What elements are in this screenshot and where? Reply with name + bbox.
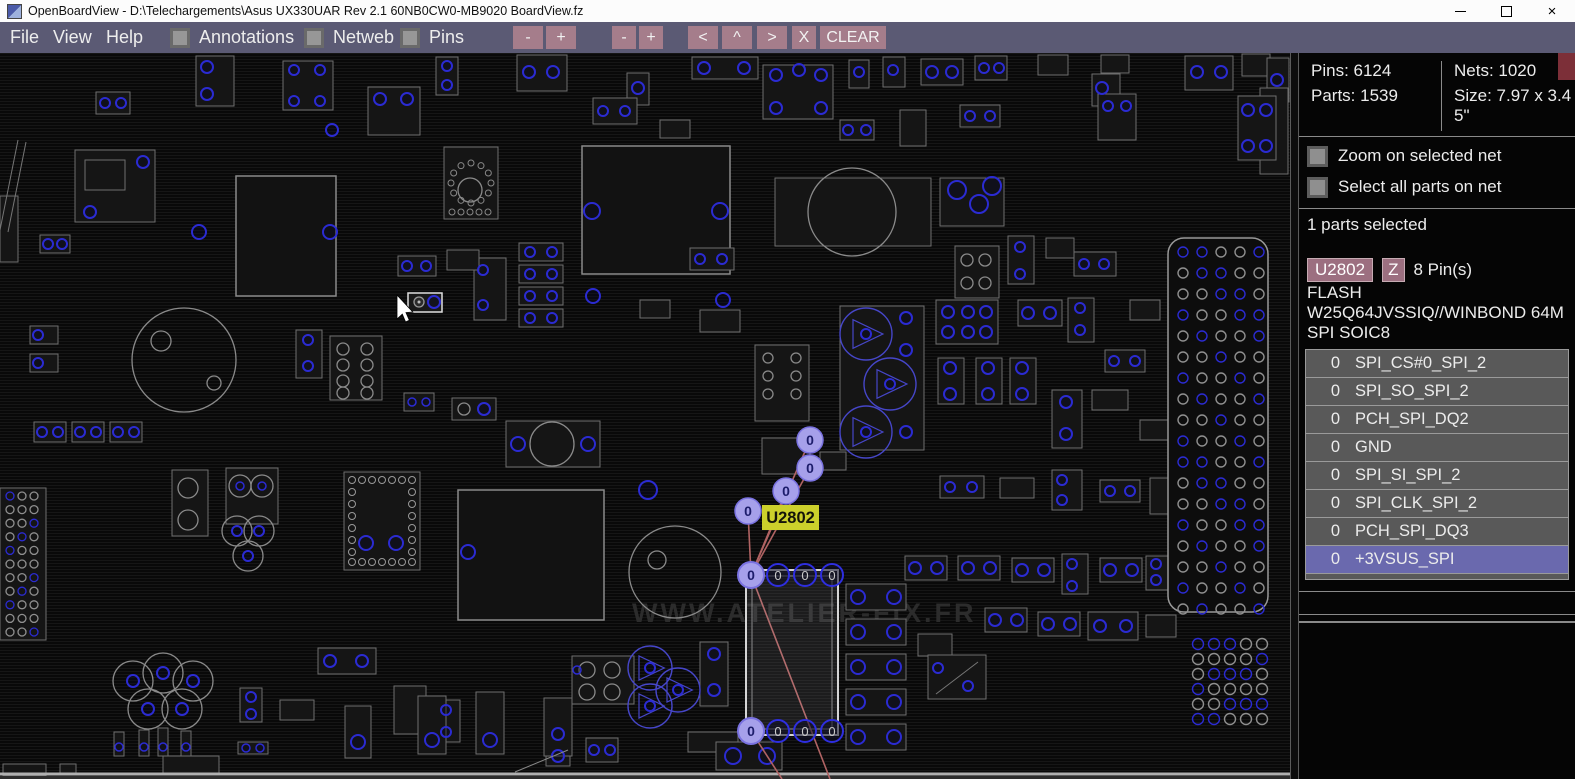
net-pin-selected[interactable]: 0 bbox=[773, 478, 799, 504]
close-icon: × bbox=[1548, 4, 1557, 19]
pin-net-row[interactable]: 0SPI_CS#0_SPI_2 bbox=[1306, 350, 1568, 378]
pin-net-row[interactable]: 0PCH_SPI_DQ2 bbox=[1306, 406, 1568, 434]
part-pin[interactable]: 0 bbox=[767, 720, 789, 742]
annotations-label: Annotations bbox=[199, 27, 294, 48]
svg-text:0: 0 bbox=[801, 568, 808, 583]
maximize-icon bbox=[1501, 6, 1512, 17]
window-title: OpenBoardView - D:\Telechargements\Asus … bbox=[28, 4, 583, 18]
menu-view[interactable]: View bbox=[53, 22, 92, 53]
clear-button[interactable]: CLEAR bbox=[820, 26, 886, 49]
zoom-on-net-checkbox[interactable] bbox=[1307, 146, 1328, 167]
zoom-in-button[interactable]: + bbox=[546, 26, 576, 49]
select-all-parts-checkbox[interactable] bbox=[1307, 177, 1328, 198]
part-ref-button[interactable]: U2802 bbox=[1307, 258, 1373, 282]
part-pin[interactable]: 0 bbox=[794, 720, 816, 742]
selection-status: 1 parts selected bbox=[1299, 209, 1575, 241]
panel-divider bbox=[1290, 53, 1299, 779]
svg-text:0: 0 bbox=[747, 723, 755, 739]
rotate-left-button[interactable]: < bbox=[688, 26, 718, 49]
part-package: SPI SOIC8 bbox=[1299, 323, 1575, 343]
part-pin-count: 8 Pin(s) bbox=[1414, 260, 1473, 280]
divider bbox=[1299, 591, 1575, 592]
pin-net-row[interactable]: 0SPI_SI_SPI_2 bbox=[1306, 462, 1568, 490]
x-button[interactable]: X bbox=[792, 26, 816, 49]
svg-text:0: 0 bbox=[801, 724, 808, 739]
board-view[interactable]: WWW.ATELIER-FIX.FR000000000000U2802 bbox=[0, 53, 1290, 779]
svg-text:0: 0 bbox=[806, 432, 814, 448]
nets-count: Nets: 1020 bbox=[1454, 61, 1575, 81]
net-pin-selected[interactable]: 0 bbox=[738, 718, 764, 744]
title-bar[interactable]: OpenBoardView - D:\Telechargements\Asus … bbox=[0, 0, 1575, 22]
plus-button-2[interactable]: + bbox=[639, 26, 663, 49]
pin-net-row-stub bbox=[1306, 574, 1568, 579]
rotate-right-button[interactable]: > bbox=[757, 26, 787, 49]
netweb-checkbox[interactable] bbox=[304, 28, 324, 48]
part-pin[interactable]: 0 bbox=[794, 564, 816, 586]
corner-red-box bbox=[1558, 53, 1575, 80]
board-stats: Pins: 6124 Parts: 1539 Nets: 1020 Size: … bbox=[1299, 53, 1575, 136]
maximize-button[interactable] bbox=[1483, 0, 1529, 22]
app-window: OpenBoardView - D:\Telechargements\Asus … bbox=[0, 0, 1575, 779]
flip-board-button[interactable]: ^ bbox=[722, 26, 752, 49]
pins-checkbox[interactable] bbox=[400, 28, 420, 48]
netweb-label: Netweb bbox=[333, 27, 394, 48]
zoom-on-net-label: Zoom on selected net bbox=[1338, 146, 1501, 166]
pin-net-list: 0SPI_CS#0_SPI_2 0SPI_SO_SPI_2 0PCH_SPI_D… bbox=[1305, 349, 1569, 580]
pin-net-row[interactable]: 0GND bbox=[1306, 434, 1568, 462]
svg-text:0: 0 bbox=[828, 724, 835, 739]
pin-net-row[interactable]: 0SPI_CLK_SPI_2 bbox=[1306, 490, 1568, 518]
net-pin-selected[interactable]: 0 bbox=[797, 455, 823, 481]
pin-net-row[interactable]: 0PCH_SPI_DQ3 bbox=[1306, 518, 1568, 546]
zoom-out-button[interactable]: - bbox=[513, 26, 543, 49]
menu-help[interactable]: Help bbox=[106, 22, 143, 53]
close-button[interactable]: × bbox=[1529, 0, 1575, 22]
menu-file[interactable]: File bbox=[10, 22, 39, 53]
board-components: WWW.ATELIER-FIX.FR bbox=[0, 54, 1290, 778]
svg-text:U2802: U2802 bbox=[766, 509, 815, 527]
board-canvas: WWW.ATELIER-FIX.FR000000000000U2802 bbox=[0, 53, 1290, 779]
parts-count: Parts: 1539 bbox=[1311, 86, 1441, 106]
minimize-icon bbox=[1455, 11, 1466, 12]
board-size: Size: 7.97 x 3.45" bbox=[1454, 86, 1575, 126]
part-pin[interactable]: 0 bbox=[767, 564, 789, 586]
svg-text:0: 0 bbox=[747, 567, 755, 583]
part-pin[interactable]: 0 bbox=[821, 720, 843, 742]
divider bbox=[1299, 614, 1575, 615]
svg-text:0: 0 bbox=[774, 724, 781, 739]
net-pin-selected[interactable]: 0 bbox=[738, 562, 764, 588]
part-type: FLASH bbox=[1299, 283, 1575, 303]
pin-net-row-selected[interactable]: 0+3VSUS_SPI bbox=[1306, 546, 1568, 574]
svg-text:0: 0 bbox=[782, 483, 790, 499]
svg-text:0: 0 bbox=[774, 568, 781, 583]
select-all-parts-label: Select all parts on net bbox=[1338, 177, 1501, 197]
net-pin-selected[interactable]: 0 bbox=[797, 427, 823, 453]
selected-part[interactable]: 00000000 bbox=[738, 562, 843, 744]
svg-text:0: 0 bbox=[744, 503, 752, 519]
part-pin[interactable]: 0 bbox=[821, 564, 843, 586]
divider bbox=[1299, 621, 1575, 623]
pin-net-row[interactable]: 0SPI_SO_SPI_2 bbox=[1306, 378, 1568, 406]
annotations-checkbox[interactable] bbox=[170, 28, 190, 48]
menu-bar: File View Help Annotations Netweb Pins -… bbox=[0, 22, 1575, 53]
svg-text:0: 0 bbox=[806, 460, 814, 476]
svg-text:0: 0 bbox=[828, 568, 835, 583]
net-pin-selected[interactable]: 0 bbox=[735, 498, 761, 524]
side-panel: Pins: 6124 Parts: 1539 Nets: 1020 Size: … bbox=[1299, 53, 1575, 779]
divider bbox=[1299, 136, 1575, 137]
minimize-button[interactable] bbox=[1437, 0, 1483, 22]
hover-part[interactable] bbox=[408, 293, 442, 312]
part-value: W25Q64JVSSIQ//WINBOND 64M bbox=[1299, 303, 1575, 323]
part-z-button[interactable]: Z bbox=[1382, 258, 1404, 282]
minus-button-2[interactable]: - bbox=[612, 26, 636, 49]
app-icon bbox=[7, 4, 22, 19]
pins-label: Pins bbox=[429, 27, 464, 48]
pins-count: Pins: 6124 bbox=[1311, 61, 1441, 81]
part-label: U2802 bbox=[762, 505, 819, 530]
